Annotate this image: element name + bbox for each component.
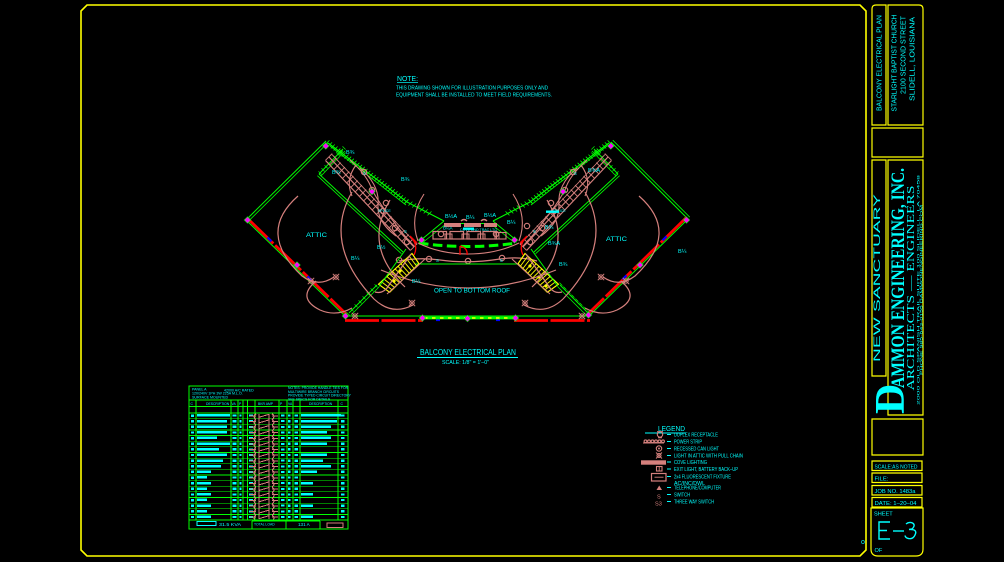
svg-text:S: S xyxy=(533,229,536,234)
svg-text:EXIT LIGHT, BATTERY BACK–UP: EXIT LIGHT, BATTERY BACK–UP xyxy=(674,467,738,473)
svg-text:ARCHITECTS — ENGINEERS: ARCHITECTS — ENGINEERS xyxy=(905,186,917,391)
svg-text:SCALE:AS NOTED: SCALE:AS NOTED xyxy=(875,465,918,471)
svg-text:SHEET: SHEET xyxy=(874,512,893,518)
svg-text:SURFACE MOUNTED: SURFACE MOUNTED xyxy=(192,396,229,400)
svg-text:POWER STRIP: POWER STRIP xyxy=(674,440,702,446)
svg-text:S: S xyxy=(436,258,439,263)
svg-text:S: S xyxy=(404,229,407,234)
svg-text:JOB NO. 1483a: JOB NO. 1483a xyxy=(875,489,917,495)
svg-text:B¼: B¼ xyxy=(466,215,475,221)
svg-text:B¼: B¼ xyxy=(507,220,516,226)
svg-text:2100 SECOND STREET: 2100 SECOND STREET xyxy=(901,15,908,94)
svg-text:S3: S3 xyxy=(655,502,662,508)
svg-text:S: S xyxy=(500,258,503,263)
svg-text:SWITCH: SWITCH xyxy=(674,493,690,499)
svg-text:SCALE: 1/8" = 1'–0": SCALE: 1/8" = 1'–0" xyxy=(442,360,489,366)
svg-text:B¼: B¼ xyxy=(351,256,360,262)
svg-text:B½: B½ xyxy=(377,244,386,251)
svg-text:BKR AMP: BKR AMP xyxy=(258,402,274,406)
svg-text:AC/INC/DWL: AC/INC/DWL xyxy=(674,481,705,487)
svg-text:o: o xyxy=(861,539,865,546)
svg-text:STARLIGHT BAPTIST CHURCH: STARLIGHT BAPTIST CHURCH xyxy=(892,15,899,112)
svg-text:ATTIC: ATTIC xyxy=(606,236,627,243)
svg-text:B¾: B¾ xyxy=(332,170,341,176)
svg-text:S: S xyxy=(363,171,366,176)
svg-text:B¾A: B¾A xyxy=(548,241,560,247)
svg-text:S: S xyxy=(657,495,661,501)
svg-text:B¾: B¾ xyxy=(346,150,355,156)
svg-text:OF: OF xyxy=(875,548,883,554)
svg-text:B¾: B¾ xyxy=(559,262,568,268)
svg-text:B¼: B¼ xyxy=(412,279,421,285)
svg-text:EQUIPMENT SHALL BE INSTALLED T: EQUIPMENT SHALL BE INSTALLED TO MEET FIE… xyxy=(396,93,552,99)
svg-text:NEW SANCTUARY: NEW SANCTUARY xyxy=(872,193,883,362)
svg-text:SEE SPECS FOR DETAILS: SEE SPECS FOR DETAILS xyxy=(288,397,331,401)
svg-text:PHONE 985-643-0155 DAMMONENGI: PHONE 985-643-0155 DAMMONENGINEERING.COM xyxy=(920,205,924,375)
svg-text:42000 A/C RATED: 42000 A/C RATED xyxy=(224,389,254,393)
svg-text:B¼A: B¼A xyxy=(443,226,453,231)
svg-text:THREE WAY SWITCH: THREE WAY SWITCH xyxy=(674,500,714,506)
svg-text:DESCRIPTION: DESCRIPTION xyxy=(309,402,333,406)
svg-text:2x4 FLUORESCENT FIXTURE: 2x4 FLUORESCENT FIXTURE xyxy=(674,475,731,481)
svg-text:131 A: 131 A xyxy=(298,522,311,527)
svg-text:LIGHT IN ATTIC WITH PULL CHAIN: LIGHT IN ATTIC WITH PULL CHAIN xyxy=(674,454,743,460)
svg-text:31.5 KVA: 31.5 KVA xyxy=(219,522,242,527)
svg-text:SPLICE: SPLICE xyxy=(378,209,391,213)
svg-text:DATE: 1–20–04: DATE: 1–20–04 xyxy=(875,501,918,507)
svg-text:B¼: B¼ xyxy=(678,249,687,255)
svg-text:B½A: B½A xyxy=(445,213,457,220)
svg-text:DUPLEX RECEPTACLE: DUPLEX RECEPTACLE xyxy=(674,433,718,439)
svg-text:S: S xyxy=(574,171,577,176)
svg-text:B¾A: B¾A xyxy=(588,168,600,174)
svg-text:B½A: B½A xyxy=(484,212,496,219)
svg-text:THIS DRAWING SHOWN FOR ILLUSTR: THIS DRAWING SHOWN FOR ILLUSTRATION PURP… xyxy=(396,86,548,92)
svg-text:B¾: B¾ xyxy=(545,225,554,231)
svg-text:TOTAL LOAD: TOTAL LOAD xyxy=(254,523,275,527)
svg-text:DESCRIPTION: DESCRIPTION xyxy=(206,402,230,406)
svg-text:COVE LIGHTING: COVE LIGHTING xyxy=(674,460,707,466)
svg-text:BALCONY ELECTRICAL PLAN: BALCONY ELECTRICAL PLAN xyxy=(420,347,516,357)
svg-text:SLIDELL, LOUISIANA: SLIDELL, LOUISIANA xyxy=(910,17,917,101)
svg-text:VA: VA xyxy=(232,402,237,406)
svg-text:B¾: B¾ xyxy=(401,177,410,183)
svg-text:VA: VA xyxy=(288,402,293,406)
svg-text:ATTIC: ATTIC xyxy=(306,232,327,239)
svg-text:COVE AND TRAC LTG: COVE AND TRAC LTG xyxy=(460,228,497,232)
svg-text:OPEN TO BOTTOM ROOF: OPEN TO BOTTOM ROOF xyxy=(434,288,510,295)
svg-text:FILE:: FILE: xyxy=(875,477,889,483)
svg-text:RECESSED CAN LIGHT: RECESSED CAN LIGHT xyxy=(674,447,720,453)
svg-text:NOTE:: NOTE: xyxy=(397,76,418,83)
svg-text:BALCONY ELECTRICAL PLAN: BALCONY ELECTRICAL PLAN xyxy=(877,15,884,111)
